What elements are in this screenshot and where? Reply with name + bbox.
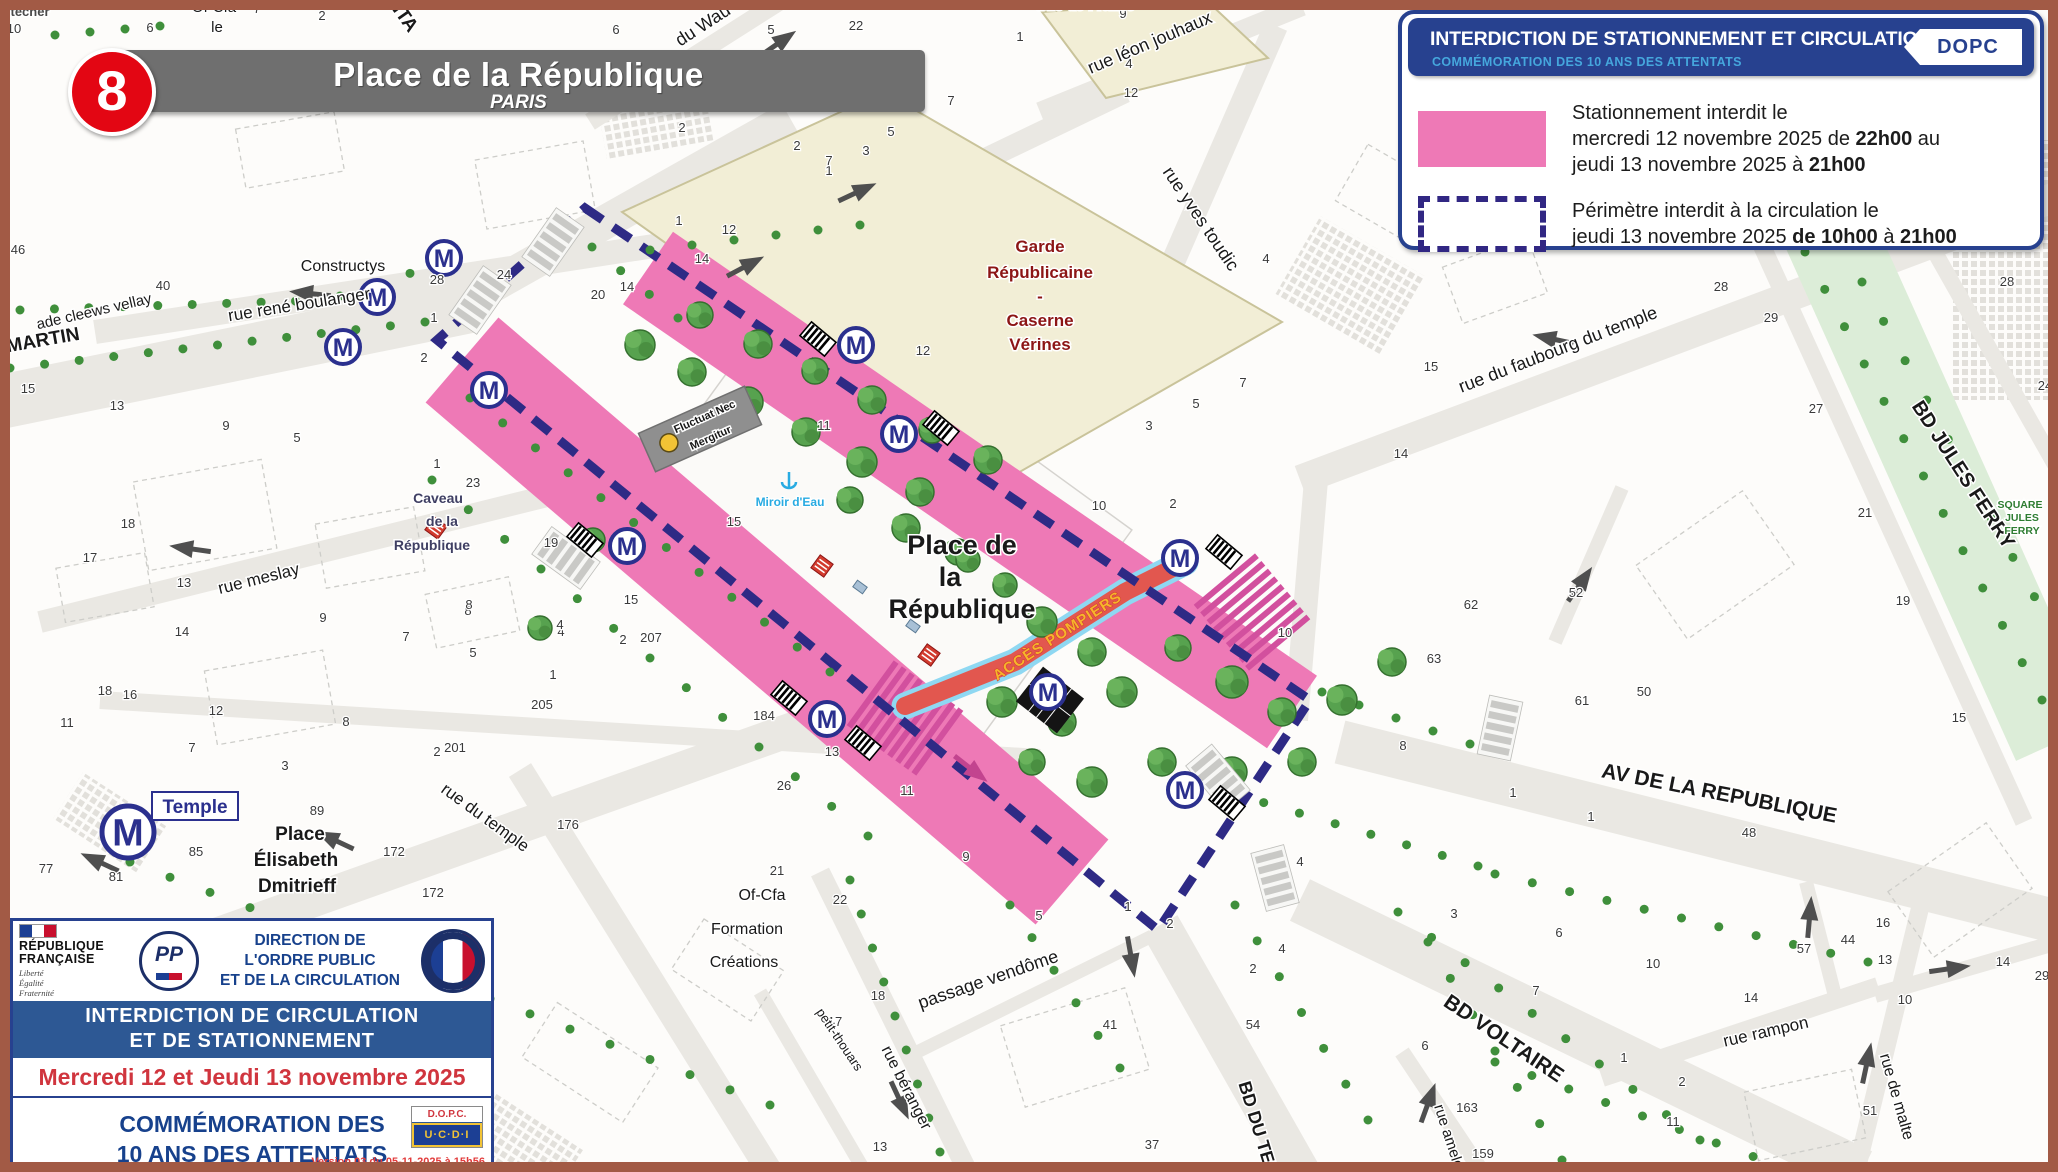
svg-text:M: M — [112, 812, 143, 854]
house-number: 163 — [1456, 1100, 1478, 1115]
tree-dot — [1826, 949, 1835, 958]
street — [1340, 742, 2058, 922]
tree-icon — [858, 386, 886, 414]
street — [1555, 488, 1622, 642]
house-number: 184 — [753, 708, 775, 723]
house-number: 37 — [1145, 1137, 1159, 1152]
crosswalk-icon — [1477, 695, 1523, 761]
svg-text:M: M — [479, 378, 500, 405]
tree-dot — [428, 476, 437, 485]
tree-icon — [1288, 748, 1316, 776]
tree-dot — [1094, 1031, 1103, 1040]
tree-dot — [1474, 862, 1483, 871]
house-number: 5 — [1192, 396, 1199, 411]
tree-dot — [1602, 896, 1611, 905]
tree-icon — [1327, 685, 1357, 715]
map-label: République — [394, 537, 470, 553]
tree-dot — [616, 266, 625, 275]
tree-dot — [500, 535, 509, 544]
direction-title: DIRECTION DEL'ORDRE PUBLICET DE LA CIRCU… — [207, 931, 413, 991]
house-number: 7 — [253, 1, 260, 16]
tree-dot — [891, 1012, 900, 1021]
house-number: 46 — [11, 242, 25, 257]
tree-dot — [1879, 317, 1888, 326]
tree-dot — [16, 306, 25, 315]
house-number: 2 — [619, 632, 626, 647]
metro-icon: M — [1163, 541, 1197, 575]
svg-text:M: M — [1175, 778, 1196, 805]
metro-icon: M — [472, 373, 506, 407]
house-number: 7 — [825, 153, 832, 168]
tree-dot — [2038, 696, 2047, 705]
house-number: 8 — [1399, 738, 1406, 753]
map-label: Créations — [710, 954, 778, 971]
tree-icon — [1165, 635, 1191, 661]
house-number: 2 — [420, 350, 427, 365]
tree-dot — [206, 888, 215, 897]
tree-dot — [1959, 546, 1968, 555]
metro-icon: M — [610, 529, 644, 563]
tree-dot — [646, 654, 655, 663]
map-label: técher — [10, 4, 49, 19]
tree-dot — [1696, 1136, 1705, 1145]
tree-dot — [1331, 819, 1340, 828]
tree-dot — [726, 1085, 735, 1094]
tree-dot — [1341, 1080, 1350, 1089]
tree-icon — [528, 616, 552, 640]
tree-icon — [744, 330, 772, 358]
tree-dot — [1259, 798, 1268, 807]
tree-dot — [1640, 905, 1649, 914]
house-number: 4 — [1296, 854, 1303, 869]
house-number: 9 — [319, 610, 326, 625]
tree-icon — [847, 447, 877, 477]
crosswalk-icon — [1251, 845, 1299, 912]
tree-dot — [629, 518, 638, 527]
house-number: 2 — [318, 8, 325, 23]
tree-dot — [2008, 553, 2017, 562]
house-number: 19 — [544, 535, 558, 550]
tree-dot — [1275, 972, 1284, 981]
tree-dot — [86, 28, 95, 37]
house-number: 63 — [1427, 651, 1441, 666]
svg-text:M: M — [817, 707, 838, 734]
tree-dot — [109, 352, 118, 361]
tree-dot — [51, 31, 60, 40]
house-number: 27 — [1809, 401, 1823, 416]
house-number: 89 — [310, 803, 324, 818]
house-number: 24 — [2038, 378, 2052, 393]
tree-dot — [1491, 1058, 1500, 1067]
tree-dot — [1528, 878, 1537, 887]
tree-dot — [1840, 322, 1849, 331]
house-number: 12 — [1124, 85, 1138, 100]
tree-dot — [1786, 1166, 1795, 1172]
map-label: JULES — [2005, 512, 2039, 524]
house-number: 12 — [209, 703, 223, 718]
house-number: 85 — [189, 844, 203, 859]
house-number: 4 — [1262, 251, 1269, 266]
metro-icon: M — [427, 241, 461, 275]
house-number: 5 — [887, 124, 894, 139]
direction-arrow — [168, 537, 212, 561]
house-number: 15 — [21, 381, 35, 396]
tree-dot — [674, 314, 683, 323]
map-label: Caserne — [1006, 311, 1073, 330]
svg-text:M: M — [846, 333, 867, 360]
tree-dot — [1899, 434, 1908, 443]
tree-icon — [792, 418, 820, 446]
house-number: 5 — [293, 430, 300, 445]
house-number: 40 — [156, 278, 170, 293]
house-number: 9 — [222, 418, 229, 433]
dopc-tag-label: DOPC — [1937, 36, 1999, 59]
metro-icon: M — [810, 702, 844, 736]
tree-dot — [695, 568, 704, 577]
tree-dot — [1231, 901, 1240, 910]
house-number: 77 — [39, 861, 53, 876]
house-number: 1 — [1509, 785, 1516, 800]
house-number: 20 — [591, 287, 605, 302]
tree-dot — [1491, 870, 1500, 879]
tree-dot — [857, 910, 866, 919]
house-number: 13 — [825, 744, 839, 759]
tree-dot — [772, 231, 781, 240]
tree-dot — [1565, 887, 1574, 896]
tree-dot — [1318, 688, 1327, 697]
house-number: 7 — [1532, 983, 1539, 998]
tree-dot — [421, 318, 430, 327]
tree-dot — [573, 594, 582, 603]
house-number: 12 — [722, 222, 736, 237]
tree-dot — [1638, 1112, 1647, 1121]
house-number: 3 — [862, 143, 869, 158]
house-number: 15 — [727, 514, 741, 529]
legend-item-text: Stationnement interdit lemercredi 12 nov… — [1572, 100, 1940, 178]
house-number: 1 — [327, 0, 334, 9]
metro-stairs-icon — [1206, 535, 1242, 569]
house-number: 6 — [612, 22, 619, 37]
tree-dot — [879, 978, 888, 987]
info-panel: RÉPUBLIQUEFRANÇAISE LibertéÉgalitéFrater… — [10, 918, 494, 1172]
house-number: 28 — [2000, 274, 2014, 289]
tree-dot — [1561, 1034, 1570, 1043]
house-number: 7 — [402, 629, 409, 644]
legend: INTERDICTION DE STATIONNEMENT ET CIRCULA… — [1398, 10, 2044, 250]
map-label: Formation — [711, 921, 783, 938]
legend-item: Périmètre interdit à la circulation leje… — [1418, 196, 2030, 252]
tree-dot — [386, 321, 395, 330]
no-parking-swatch — [1418, 111, 1546, 167]
house-number: 15 — [1424, 359, 1438, 374]
house-number: 41 — [1103, 1017, 1117, 1032]
tree-dot — [1297, 1008, 1306, 1017]
house-number: 13 — [110, 398, 124, 413]
house-number: 6 — [1421, 1038, 1428, 1053]
tree-dot — [1429, 727, 1438, 736]
map-label: NTA — [383, 0, 422, 37]
french-flag-icon — [19, 924, 57, 938]
tree-dot — [1978, 584, 1987, 593]
svg-text:M: M — [333, 335, 354, 362]
house-number: 3 — [1450, 906, 1457, 921]
house-number: 16 — [123, 687, 137, 702]
tree-dot — [1528, 1009, 1537, 1018]
house-number: 14 — [1744, 990, 1758, 1005]
tree-dot — [1919, 472, 1928, 481]
building-outline — [236, 112, 345, 188]
house-number: 8 — [465, 597, 472, 612]
house-number: 2 — [678, 120, 685, 135]
tree-dot — [1677, 914, 1686, 923]
tree-dot — [1513, 1083, 1522, 1092]
tree-dot — [1535, 1119, 1544, 1128]
metro-icon: M — [1031, 675, 1065, 709]
house-number: 54 — [1246, 1017, 1260, 1032]
tree-icon — [1268, 698, 1296, 726]
tree-dot — [1712, 1139, 1721, 1148]
map-label: Place — [275, 824, 325, 845]
tree-dot — [1461, 958, 1470, 967]
map-label: Dmitrieff — [258, 876, 337, 897]
tree-dot — [406, 269, 415, 278]
tree-dot — [121, 25, 130, 34]
tree-dot — [846, 876, 855, 885]
tree-dot — [566, 1025, 575, 1034]
ucdi-logo: D.O.P.C. U·C·D·I — [411, 1106, 483, 1148]
tree-dot — [188, 300, 197, 309]
house-number: 51 — [1863, 1103, 1877, 1118]
tree-dot — [1939, 509, 1948, 518]
tree-icon — [906, 478, 934, 506]
house-number: 3 — [281, 758, 288, 773]
tree-dot — [766, 1101, 775, 1110]
house-number: 1 — [549, 667, 556, 682]
tree-dot — [144, 348, 153, 357]
house-number: 11 — [1666, 1114, 1680, 1129]
house-number: 1 — [1124, 899, 1131, 914]
metro-icon: M — [839, 328, 873, 362]
tree-dot — [868, 944, 877, 953]
house-number: 16 — [1876, 915, 1890, 930]
tree-icon — [1078, 638, 1106, 666]
house-number: 5 — [469, 645, 476, 660]
tree-dot — [936, 1148, 945, 1157]
info-panel-header: RÉPUBLIQUEFRANÇAISE LibertéÉgalitéFrater… — [13, 921, 491, 1001]
tree-icon — [1216, 666, 1248, 698]
house-number: 48 — [1742, 825, 1756, 840]
house-number: 2 — [1166, 916, 1173, 931]
house-number: 28 — [1714, 279, 1728, 294]
building-outline — [133, 459, 277, 570]
tree-dot — [1427, 933, 1436, 942]
date-line: Mercredi 12 et Jeudi 13 novembre 2025 — [13, 1058, 491, 1098]
house-number: 13 — [1878, 952, 1892, 967]
tree-dot — [1998, 621, 2007, 630]
ucdi-logo-top: D.O.P.C. — [412, 1107, 482, 1123]
house-number: 5 — [767, 22, 774, 37]
building-outline — [1636, 491, 1794, 639]
house-number: 50 — [1637, 684, 1651, 699]
tree-dot — [1072, 998, 1081, 1007]
house-number: 24 — [497, 267, 511, 282]
house-number: 7 — [947, 93, 954, 108]
house-number: 5 — [1035, 908, 1042, 923]
map-label: Garde — [1015, 237, 1064, 256]
tree-dot — [1820, 285, 1829, 294]
house-number: 62 — [1464, 597, 1478, 612]
house-number: 19 — [1896, 593, 1910, 608]
tree-dot — [755, 743, 764, 752]
tree-dot — [1858, 278, 1867, 287]
house-number: 10 — [7, 21, 21, 36]
tree-dot — [1364, 1116, 1373, 1125]
tree-dot — [246, 903, 255, 912]
tree-dot — [856, 221, 865, 230]
tree-dot — [498, 418, 507, 427]
house-number: 14 — [1394, 446, 1408, 461]
map-label: Constructys — [301, 258, 385, 275]
version-note: Version 03 du 05-11-2025 à 15h56 — [311, 1155, 485, 1169]
page-title: Place de la République — [112, 56, 925, 94]
legend-item: Stationnement interdit lemercredi 12 nov… — [1418, 100, 2030, 178]
map-label: Of-Cfa — [192, 0, 237, 16]
house-number: 1 — [675, 213, 682, 228]
tree-dot — [1880, 397, 1889, 406]
tree-dot — [682, 683, 691, 692]
house-number: 2 — [1169, 496, 1176, 511]
tree-dot — [526, 1009, 535, 1018]
tree-dot — [1558, 1156, 1567, 1165]
republique-francaise-logo: RÉPUBLIQUEFRANÇAISE LibertéÉgalitéFrater… — [19, 924, 131, 999]
map-label: FERRY — [2004, 525, 2039, 537]
tree-icon — [1107, 677, 1137, 707]
house-number: 205 — [531, 697, 553, 712]
house-number: 1 — [1016, 29, 1023, 44]
tree-dot — [2018, 658, 2027, 667]
tree-dot — [248, 337, 257, 346]
house-number: 17 — [83, 550, 97, 565]
house-number: 26 — [777, 778, 791, 793]
house-number: 2 — [793, 138, 800, 153]
tree-dot — [1595, 1060, 1604, 1069]
tree-dot — [1494, 984, 1503, 993]
tree-icon — [678, 358, 706, 386]
map-label: d'Île-de-France — [1035, 0, 1134, 13]
map-label: Élisabeth — [254, 849, 338, 871]
house-number: 1 — [1587, 809, 1594, 824]
tree-dot — [564, 468, 573, 477]
metro-icon: M — [882, 417, 916, 451]
building-outline — [204, 650, 335, 745]
building-outline — [522, 1003, 658, 1123]
house-number: 29 — [1764, 310, 1778, 325]
tree-dot — [646, 1055, 655, 1064]
tree-dot — [464, 505, 473, 514]
ucdi-logo-bottom: U·C·D·I — [412, 1123, 482, 1147]
house-number: 1 — [430, 310, 437, 325]
tree-dot — [1628, 1085, 1637, 1094]
tree-icon — [987, 687, 1017, 717]
house-number: 14 — [695, 251, 709, 266]
house-number: 10 — [1646, 956, 1660, 971]
svg-text:M: M — [434, 246, 455, 273]
tree-dot — [6, 364, 15, 373]
tree-dot — [1752, 931, 1761, 940]
house-number: 13 — [873, 1139, 887, 1154]
house-number: 201 — [444, 740, 466, 755]
tree-dot — [727, 593, 736, 602]
house-number: 4 — [1278, 941, 1285, 956]
tree-dot — [793, 643, 802, 652]
legend-items: Stationnement interdit lemercredi 12 nov… — [1418, 82, 2030, 252]
house-number: 159 — [1472, 1146, 1494, 1161]
map-label: le — [211, 19, 223, 36]
prefecture-police-logo: PP — [139, 931, 199, 991]
metro-icon: M — [102, 806, 154, 858]
tree-dot — [1860, 360, 1869, 369]
building-outline — [475, 141, 595, 229]
tree-dot — [1601, 1098, 1610, 1107]
house-number: 3 — [1145, 418, 1152, 433]
tree-icon — [1378, 648, 1406, 676]
tree-dot — [1366, 830, 1375, 839]
house-number: 2 — [433, 744, 440, 759]
map-label: Caveau — [413, 490, 463, 506]
tree-dot — [531, 443, 540, 452]
dopc-tag: DOPC — [1904, 29, 2022, 65]
building-outline — [425, 577, 520, 648]
house-number: 4 — [556, 617, 563, 632]
tree-icon — [974, 446, 1002, 474]
house-number: 52 — [1569, 585, 1583, 600]
temple-station-label: Temple — [162, 797, 227, 818]
house-number: 12 — [916, 343, 930, 358]
tree-dot — [1446, 974, 1455, 983]
tree-dot — [1564, 1085, 1573, 1094]
map-label: République — [889, 594, 1036, 624]
tree-dot — [1319, 1044, 1328, 1053]
house-number: 29 — [2035, 968, 2049, 983]
tree-dot — [1901, 356, 1910, 365]
commemoration-block: COMMÉMORATION DES10 ANS DES ATTENTATS D.… — [13, 1098, 491, 1171]
house-number: 14 — [1996, 954, 2010, 969]
house-number: 6 — [146, 20, 153, 35]
dopc-roundel-logo — [421, 929, 485, 993]
tree-dot — [718, 713, 727, 722]
tree-icon — [625, 330, 655, 360]
tree-dot — [646, 246, 655, 255]
legend-title: INTERDICTION DE STATIONNEMENT ET CIRCULA… — [1430, 28, 1931, 51]
tree-dot — [814, 226, 823, 235]
tree-dot — [156, 22, 165, 31]
tree-icon — [837, 487, 863, 513]
tree-dot — [40, 360, 49, 369]
legend-header: INTERDICTION DE STATIONNEMENT ET CIRCULA… — [1408, 18, 2034, 76]
legend-subtitle: COMMÉMORATION DES 10 ANS DES ATTENTATS — [1432, 55, 1742, 69]
svg-text:M: M — [889, 422, 910, 449]
house-number: 14 — [175, 624, 189, 639]
tree-dot — [760, 618, 769, 627]
route-number-badge: 8 — [68, 48, 156, 136]
house-number: 8 — [342, 714, 349, 729]
tree-dot — [606, 1040, 615, 1049]
house-number: 15 — [624, 592, 638, 607]
metro-icon: M — [1168, 773, 1202, 807]
map-label: SQUARE — [1998, 499, 2043, 511]
tree-dot — [688, 241, 697, 250]
house-number: 9 — [962, 849, 969, 864]
